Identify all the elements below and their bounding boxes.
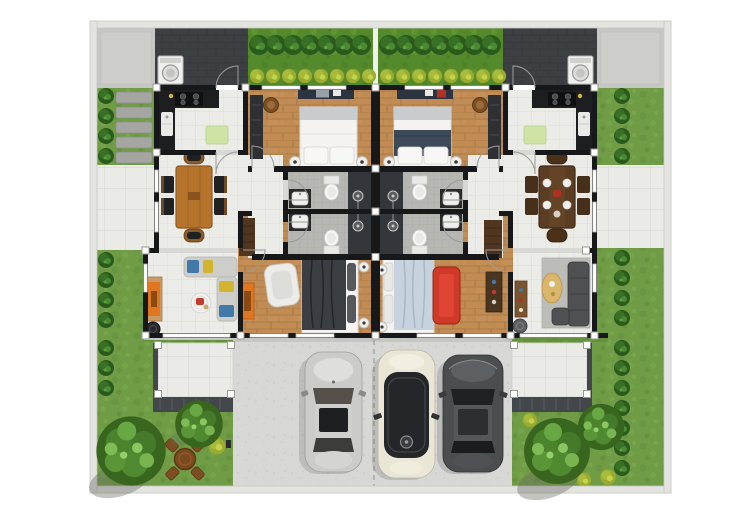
bed <box>394 107 451 168</box>
pillow <box>304 147 328 164</box>
cushion-blue <box>187 260 199 273</box>
sliding-door <box>520 334 587 338</box>
tree <box>175 400 223 448</box>
plate <box>563 179 571 187</box>
tree <box>578 404 624 450</box>
garden-tap <box>226 440 231 448</box>
boundary-wall-right <box>664 21 671 493</box>
washing-machine-right <box>568 56 593 84</box>
sofa-red <box>433 267 460 324</box>
car-silver-sedan <box>301 352 367 472</box>
cushion-yellow <box>203 260 213 273</box>
car-sunroof <box>319 408 348 432</box>
stove <box>548 92 576 106</box>
kitchen-mat <box>206 126 228 144</box>
door-opening <box>513 85 535 90</box>
cushion-blue <box>219 305 234 317</box>
dining-chair <box>525 198 538 215</box>
door-opening <box>216 85 238 90</box>
terrace-left <box>97 165 155 250</box>
cushion-yellow <box>219 281 234 292</box>
pillow <box>347 263 356 291</box>
sofa-dark-return <box>552 308 569 325</box>
shower-strip-left <box>348 172 371 258</box>
window <box>308 86 346 90</box>
pillow <box>330 147 354 164</box>
kitchen-mat <box>524 126 546 144</box>
boundary-wall-bottom <box>90 486 671 493</box>
window <box>593 202 597 232</box>
pillow <box>424 147 448 164</box>
window <box>155 202 159 232</box>
stove <box>175 92 203 106</box>
plate <box>563 201 571 209</box>
car-windshield <box>313 388 354 404</box>
window <box>262 86 300 90</box>
outdoor-table <box>175 449 196 470</box>
vehicles <box>299 350 508 480</box>
car-windshield <box>451 389 495 405</box>
west-wall-lower <box>143 248 148 338</box>
window <box>155 170 159 192</box>
side-garden-right-bottom <box>597 248 664 337</box>
stool <box>513 319 527 333</box>
sliding-door <box>163 334 230 338</box>
armchair <box>263 262 301 308</box>
oval-coffee-table <box>542 273 562 303</box>
boundary-wall-left <box>90 21 97 493</box>
floor-plan-page <box>0 0 750 530</box>
dining-chair <box>577 198 590 215</box>
window <box>593 170 597 192</box>
window <box>417 334 455 338</box>
window <box>296 334 334 338</box>
pillow <box>347 295 356 323</box>
washing-machine-left <box>158 56 183 84</box>
dining-chair <box>525 176 538 193</box>
boundary-wall-top <box>90 21 671 28</box>
concrete-slab-topleft <box>101 32 151 84</box>
entry-porch-right <box>512 343 592 412</box>
window <box>451 86 489 90</box>
bed-blue <box>383 255 434 333</box>
concrete-slab-topright <box>601 32 660 84</box>
pillow <box>398 147 422 164</box>
plate <box>543 179 551 187</box>
window <box>405 86 443 90</box>
shower-strip-right <box>380 172 403 258</box>
window <box>593 264 597 292</box>
tree <box>96 416 165 485</box>
stepping-stones <box>116 92 152 163</box>
window <box>463 334 501 338</box>
side-garden-right-top <box>597 88 664 165</box>
plate <box>543 201 551 209</box>
car-cream-minivan <box>373 350 440 478</box>
car-charcoal-sedan <box>438 355 508 472</box>
dining-chair <box>577 176 590 193</box>
pillow <box>384 295 393 323</box>
bed-dark <box>302 255 358 333</box>
window <box>250 334 288 338</box>
window <box>144 264 148 292</box>
dining-chair <box>547 229 567 242</box>
bed <box>300 107 357 168</box>
patio-right <box>597 165 664 248</box>
floor-plan-canvas <box>0 0 750 530</box>
